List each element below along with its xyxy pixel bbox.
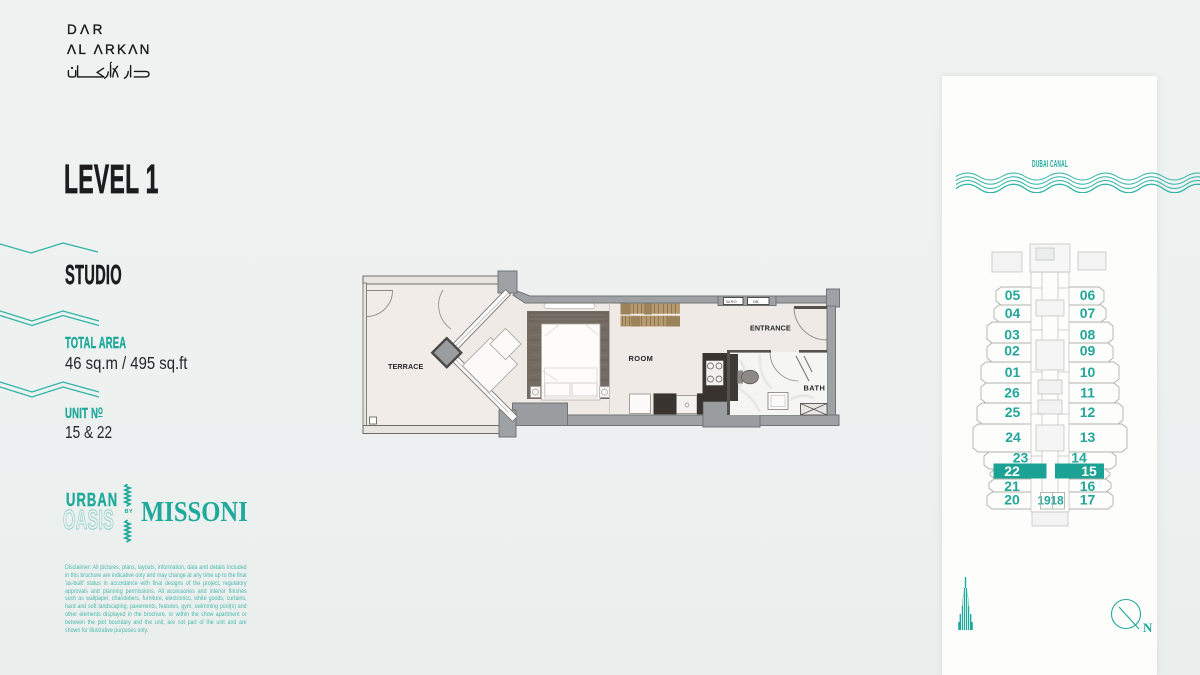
svg-text:11: 11 bbox=[1080, 385, 1095, 401]
svg-text:DB: DB bbox=[753, 299, 759, 304]
svg-text:12: 12 bbox=[1080, 404, 1096, 420]
svg-text:01: 01 bbox=[1005, 364, 1021, 380]
svg-text:05: 05 bbox=[1005, 287, 1021, 303]
svg-text:06: 06 bbox=[1080, 287, 1096, 303]
svg-text:ENTRANCE: ENTRANCE bbox=[750, 324, 791, 333]
svg-text:15: 15 bbox=[1081, 463, 1097, 479]
svg-text:04: 04 bbox=[1005, 305, 1021, 321]
svg-text:19: 19 bbox=[1037, 494, 1051, 508]
svg-text:22: 22 bbox=[1004, 463, 1020, 479]
svg-text:24: 24 bbox=[1005, 429, 1021, 445]
svg-text:13: 13 bbox=[1080, 429, 1096, 445]
svg-text:10: 10 bbox=[1080, 364, 1096, 380]
svg-text:TERRACE: TERRACE bbox=[388, 362, 424, 371]
svg-text:03: 03 bbox=[1004, 327, 1020, 343]
svg-text:ROOM: ROOM bbox=[629, 354, 654, 363]
svg-text:07: 07 bbox=[1080, 305, 1096, 321]
svg-text:17: 17 bbox=[1080, 492, 1096, 508]
svg-text:BATH: BATH bbox=[804, 384, 826, 393]
svg-text:W.RO: W.RO bbox=[726, 299, 737, 304]
svg-text:02: 02 bbox=[1004, 343, 1020, 359]
svg-text:25: 25 bbox=[1005, 404, 1021, 420]
svg-text:09: 09 bbox=[1080, 343, 1096, 359]
svg-text:26: 26 bbox=[1004, 385, 1020, 401]
svg-text:N: N bbox=[1143, 620, 1153, 635]
svg-text:20: 20 bbox=[1004, 492, 1020, 508]
svg-text:08: 08 bbox=[1080, 327, 1096, 343]
